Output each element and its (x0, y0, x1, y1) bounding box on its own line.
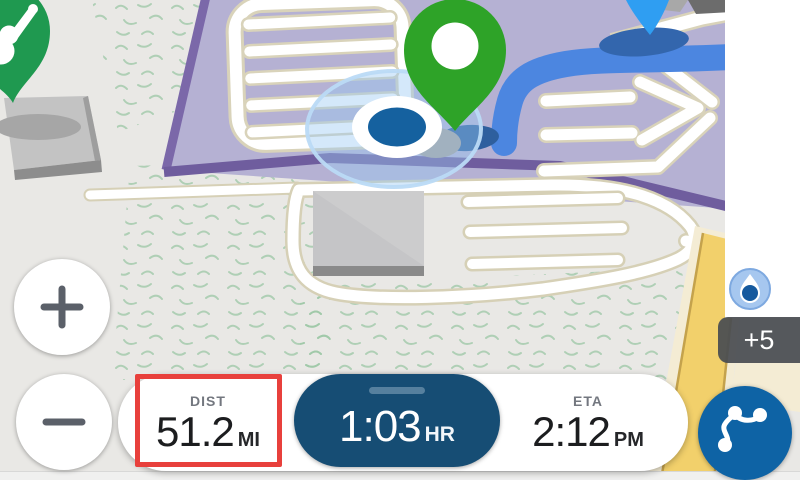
dist-unit: MI (238, 429, 260, 452)
route-overview-button[interactable] (698, 386, 792, 480)
dist-field[interactable]: DIST 51.2 MI (128, 374, 288, 471)
trip-info-bar: DIST 51.2 MI 1:03 HR ETA 2:12 PM (118, 374, 688, 471)
eta-unit: PM (614, 429, 644, 452)
time-remaining-pill[interactable]: 1:03 HR (294, 374, 500, 467)
eta-field[interactable]: ETA 2:12 PM (500, 374, 676, 471)
navigation-screen: DIST 51.2 MI 1:03 HR ETA 2:12 PM +5 (0, 0, 800, 480)
zoom-out-button[interactable] (16, 374, 112, 470)
bottom-panel-edge (0, 471, 800, 480)
eta-label: ETA (573, 393, 603, 409)
plus-icon (39, 284, 85, 330)
building (313, 191, 424, 276)
minus-icon (41, 399, 87, 445)
dist-value: 51.2 (156, 411, 234, 453)
dist-label: DIST (190, 393, 226, 409)
eta-value: 2:12 (532, 411, 610, 453)
building-platform (0, 96, 102, 180)
location-layer-button[interactable] (728, 267, 772, 311)
droplet-icon (728, 267, 772, 311)
zoom-in-button[interactable] (14, 259, 110, 355)
notification-badge[interactable]: +5 (718, 317, 800, 363)
time-remaining-value: 1:03 (339, 405, 421, 449)
route-icon (698, 386, 792, 480)
time-remaining-unit: HR (425, 423, 455, 447)
drag-handle[interactable] (369, 387, 425, 394)
